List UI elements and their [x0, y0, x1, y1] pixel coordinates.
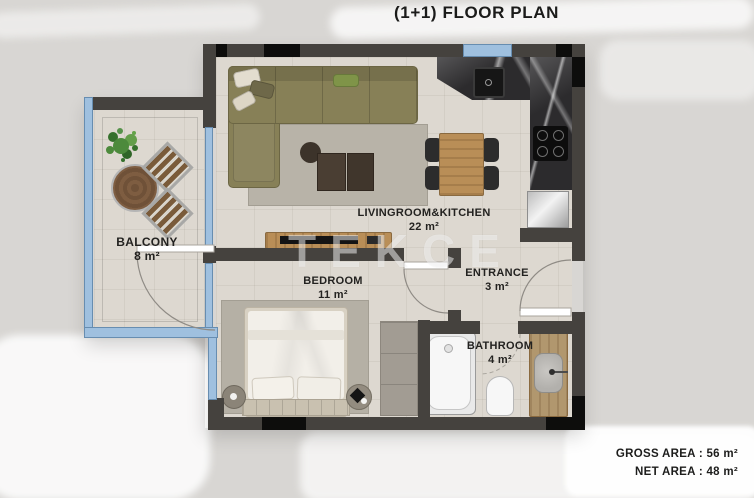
tv-speaker — [367, 236, 381, 244]
bed-pillow — [251, 376, 294, 401]
sofa-chaise-cushion — [233, 118, 275, 182]
room-area: 4 m² — [467, 353, 533, 367]
dining-table — [439, 133, 484, 196]
room-area: 3 m² — [465, 280, 529, 294]
gross-area-line: GROSS AREA : 56 m² — [616, 445, 738, 463]
wall-bathroom-stub — [448, 310, 461, 322]
dining-chair — [482, 138, 499, 162]
room-label-bedroom: BEDROOM 11 m² — [303, 274, 363, 302]
bedroom-window — [205, 263, 213, 331]
wall-left-stub — [203, 246, 216, 263]
bathtub-drain — [444, 344, 453, 353]
coffee-table — [347, 153, 374, 191]
page-title: (1+1) FLOOR PLAN — [394, 3, 559, 23]
cooktop-burner — [553, 130, 564, 141]
bed-duvet-fold — [248, 330, 344, 340]
wall-bottom-black-segment — [546, 417, 585, 430]
kitchen-window — [463, 44, 512, 57]
room-label-entrance: ENTRANCE 3 m² — [465, 266, 529, 294]
area-summary: GROSS AREA : 56 m² NET AREA : 48 m² — [616, 445, 738, 481]
wall-top — [203, 44, 585, 57]
wall-living-bedroom — [216, 248, 404, 261]
bed-pillow — [297, 376, 342, 402]
bed-headboard — [242, 399, 350, 416]
bedroom-window-lower — [208, 330, 217, 400]
cooktop-burner — [537, 146, 548, 157]
room-label-balcony: BALCONY 8 m² — [116, 235, 177, 263]
bathroom-faucet-knob — [549, 369, 555, 375]
balcony-railing-bottom — [84, 327, 218, 338]
balcony-railing-left — [84, 97, 93, 338]
wall-bathroom-top — [418, 321, 480, 334]
room-area: 22 m² — [357, 220, 490, 234]
room-label-livingroom-kitchen: LIVINGROOM&KITCHEN 22 m² — [357, 206, 490, 234]
room-name: BATHROOM — [467, 339, 533, 353]
brush-stroke-right — [600, 40, 754, 100]
wall-bathroom-top-right — [518, 321, 572, 334]
wall-kitchen-entrance — [520, 228, 572, 242]
kitchen-faucet — [485, 79, 492, 86]
wall-bottom-black-segment — [262, 417, 306, 430]
wall-bedroom-door-stub — [448, 248, 461, 268]
tv-screen — [280, 236, 358, 244]
toilet — [486, 376, 514, 416]
nightstand-lamp — [230, 393, 237, 400]
room-area: 11 m² — [303, 288, 363, 302]
room-name: LIVINGROOM&KITCHEN — [357, 206, 490, 220]
wall-bedroom-bathroom — [418, 320, 430, 417]
cooktop-burner — [553, 146, 564, 157]
sofa-pillow-green — [333, 74, 359, 87]
floor-plan-page: (1+1) FLOOR PLAN — [0, 0, 754, 498]
cooktop-burner — [537, 130, 548, 141]
room-label-bathroom: BATHROOM 4 m² — [467, 339, 533, 367]
room-name: ENTRANCE — [465, 266, 529, 280]
kitchen-counter-right — [530, 57, 572, 190]
wall-corner-bottom-left — [208, 398, 224, 430]
wall-left-top — [203, 44, 216, 128]
wall-right-black-segment — [572, 57, 585, 87]
net-area-line: NET AREA : 48 m² — [616, 463, 738, 481]
dining-chair — [482, 166, 499, 190]
balcony-slider-glass — [205, 127, 213, 247]
brush-stroke-bottom-left — [0, 335, 210, 498]
coffee-table — [317, 153, 346, 191]
wall-top-black-segment — [264, 44, 300, 57]
brush-stroke-top-left — [0, 3, 260, 38]
balcony-wall-top — [85, 97, 216, 110]
room-name: BALCONY — [116, 235, 177, 249]
room-name: BEDROOM — [303, 274, 363, 288]
wardrobe — [380, 321, 418, 416]
nightstand-cup — [361, 398, 367, 404]
refrigerator — [527, 191, 569, 228]
room-area: 8 m² — [116, 249, 177, 263]
plant — [113, 138, 129, 154]
